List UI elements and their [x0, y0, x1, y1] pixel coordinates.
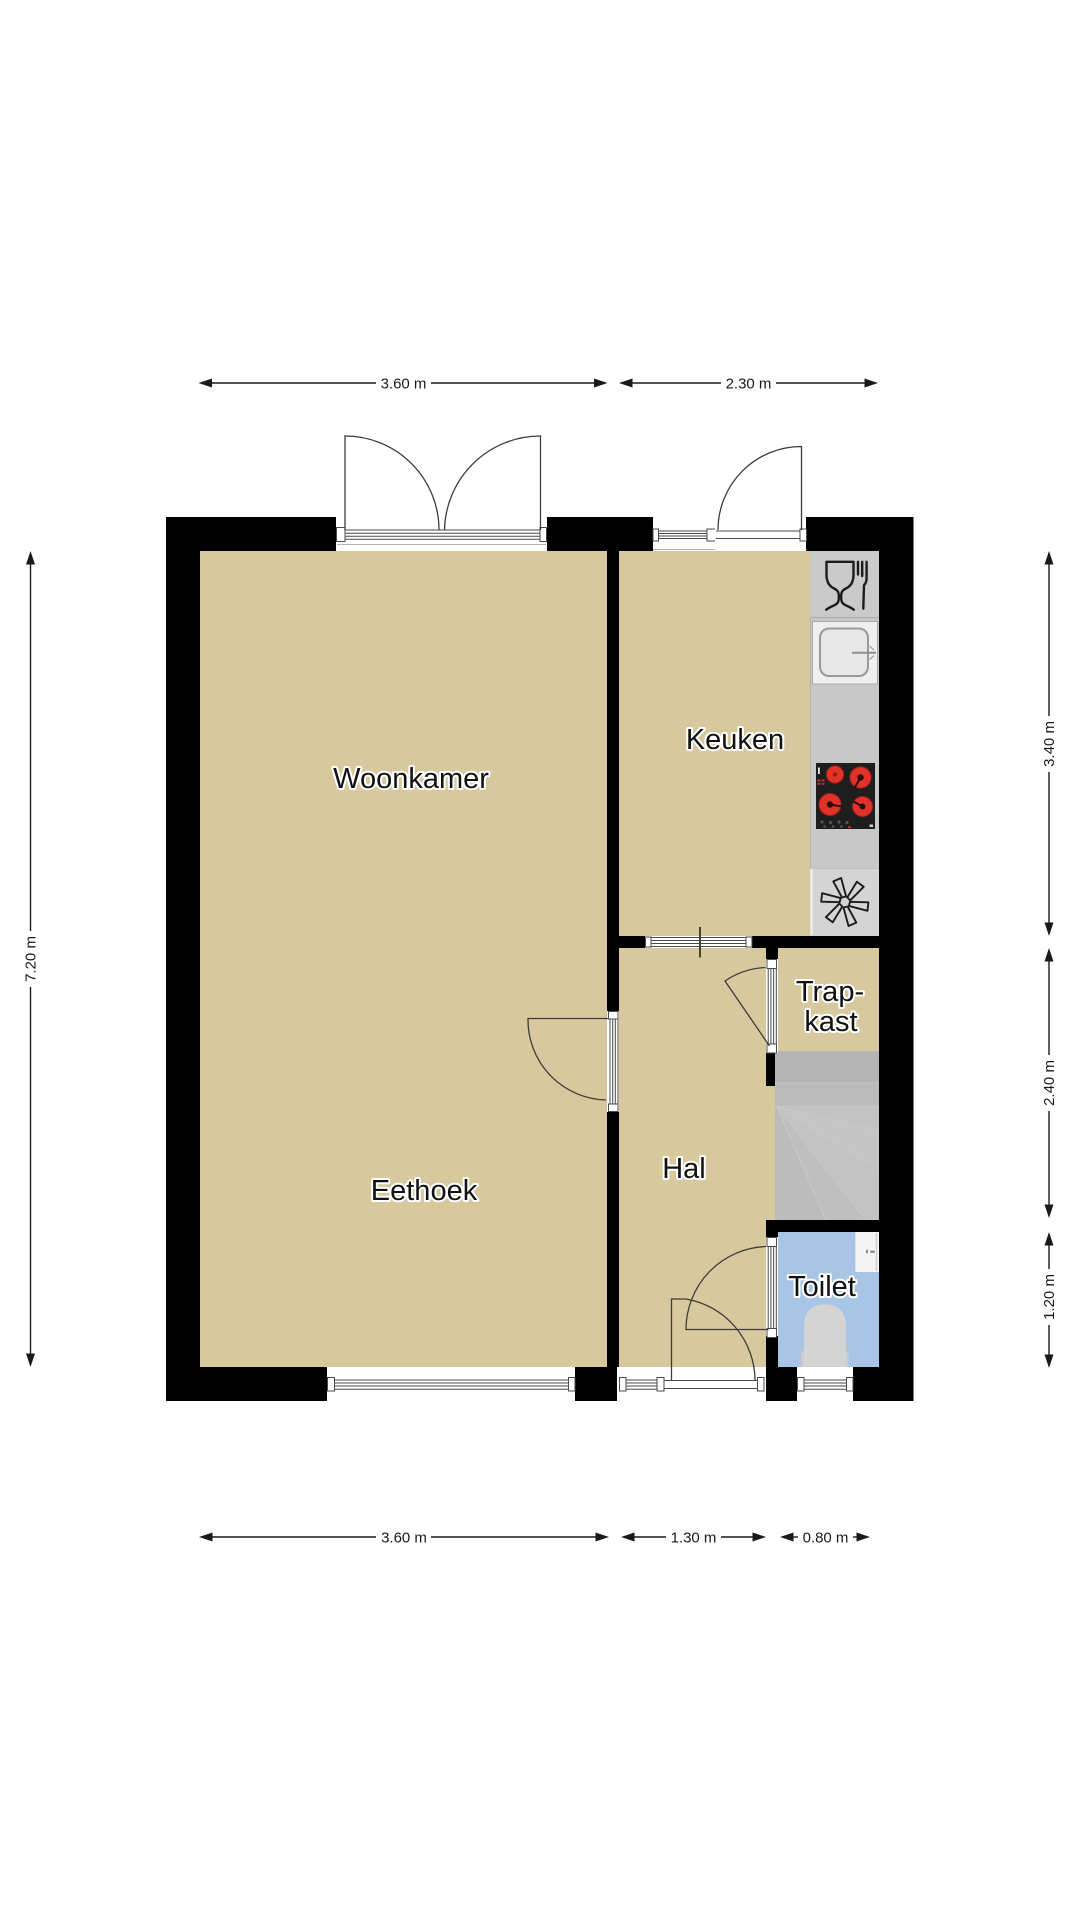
svg-text:3.40 m: 3.40 m [1041, 721, 1058, 767]
svg-text:2.30 m: 2.30 m [726, 376, 772, 393]
svg-text:Keuken: Keuken [686, 724, 784, 756]
svg-text:Toilet: Toilet [788, 1271, 856, 1303]
svg-text:3.60 m: 3.60 m [381, 376, 427, 393]
svg-text:kast: kast [804, 1006, 857, 1038]
svg-text:1.20 m: 1.20 m [1041, 1274, 1058, 1320]
svg-text:7.20 m: 7.20 m [23, 936, 40, 982]
svg-text:1.30 m: 1.30 m [671, 1530, 717, 1547]
svg-text:Hal: Hal [662, 1153, 706, 1185]
svg-text:3.60 m: 3.60 m [381, 1530, 427, 1547]
svg-text:0.80 m: 0.80 m [803, 1530, 849, 1547]
svg-text:Eethoek: Eethoek [371, 1175, 478, 1207]
svg-text:Trap-: Trap- [796, 976, 864, 1008]
svg-text:Woonkamer: Woonkamer [333, 763, 489, 795]
svg-text:2.40 m: 2.40 m [1041, 1060, 1058, 1106]
